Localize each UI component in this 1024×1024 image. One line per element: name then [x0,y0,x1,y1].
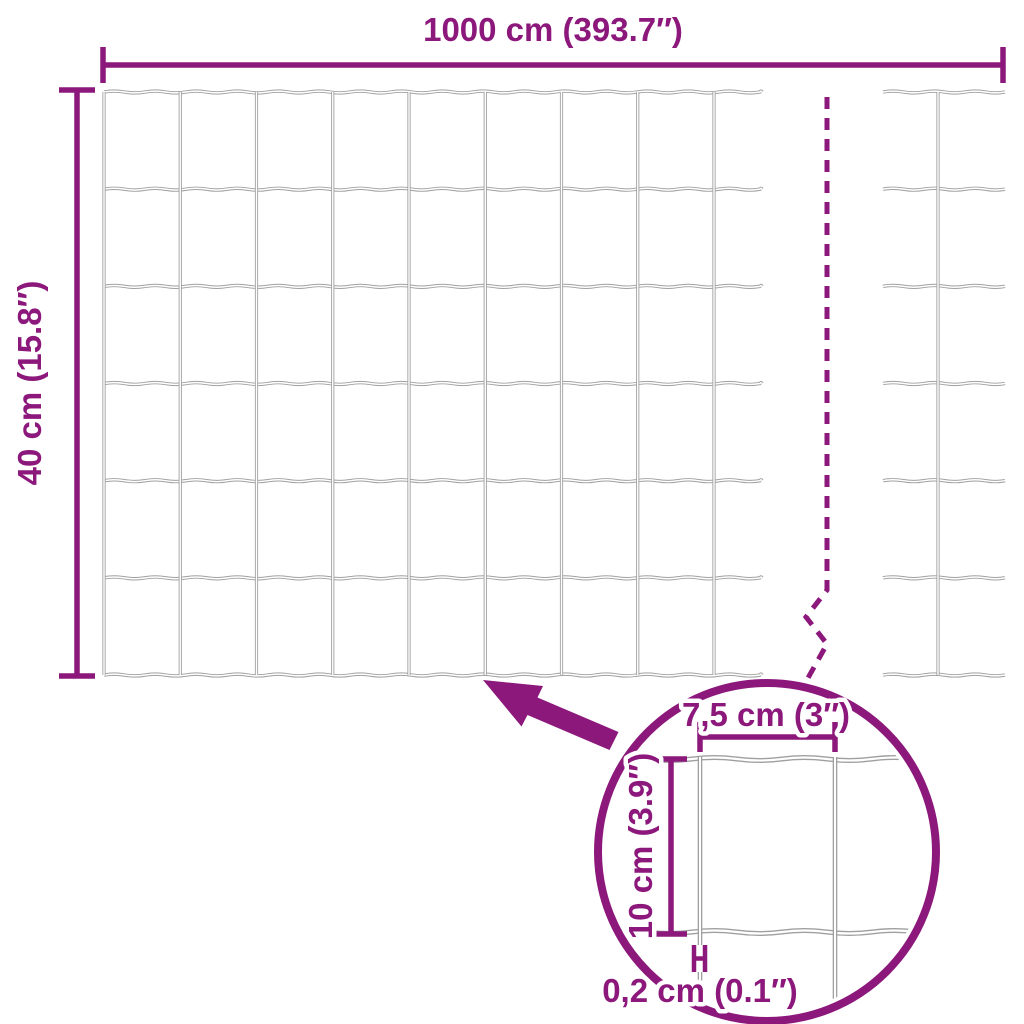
zoom-arrow-icon [483,680,619,750]
width-dimension-label: 1000 cm (393.7″) [423,11,683,48]
fence-dimension-diagram: 1000 cm (393.7″) 40 cm (15.8″) 7,5 cm (3… [0,0,1024,1024]
break-dashed-line-icon [806,97,827,678]
width-dimension-line [103,47,1003,83]
height-dimension: 40 cm (15.8″) [11,90,95,676]
diagram-canvas: 1000 cm (393.7″) 40 cm (15.8″) 7,5 cm (3… [0,0,1024,1024]
wire-thickness-label: 0,2 cm (0.1″) [602,972,798,1009]
height-dimension-label: 40 cm (15.8″) [11,281,48,486]
cell-height-label: 10 cm (3.9″) [622,753,659,939]
cell-width-label: 7,5 cm (3″) [682,696,850,733]
height-dimension-line [59,90,95,676]
mesh-detail-inset: 7,5 cm (3″) 10 cm (3.9″) 0,2 cm (0.1″) [598,683,936,1021]
fence-mesh-fragment [883,91,1005,676]
cell-height-dimension-line [655,759,687,934]
fence-mesh [104,91,762,676]
width-dimension: 1000 cm (393.7″) [103,11,1003,83]
